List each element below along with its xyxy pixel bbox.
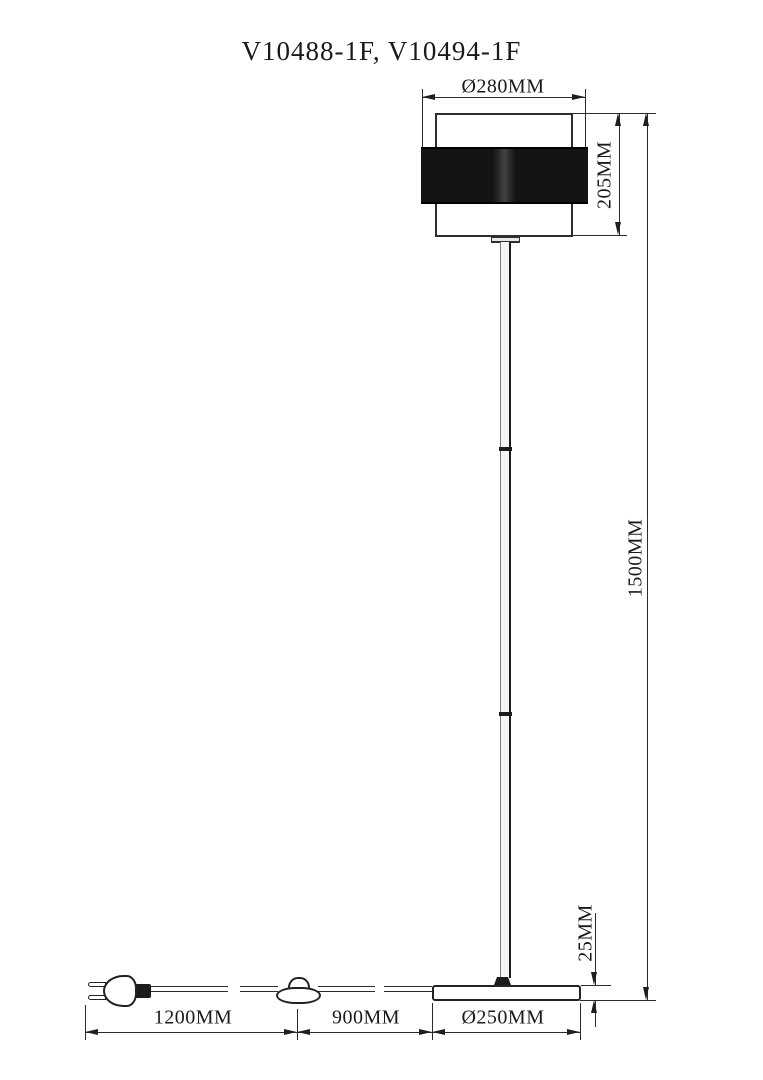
- lamp-base: [432, 985, 581, 1001]
- pole-joint-upper: [499, 447, 512, 451]
- dim-shade-diameter-ext-right: [585, 89, 586, 147]
- pole-foot-flange: [494, 977, 511, 985]
- dim-label-total-height: 1500MM: [625, 519, 648, 598]
- arrowhead-right-icon: [572, 94, 585, 100]
- dim-label-shade-height: 205MM: [594, 141, 617, 209]
- arrowhead-right-icon: [567, 1029, 580, 1035]
- foot-switch-base: [276, 987, 321, 1004]
- arrowhead-up-icon: [615, 113, 621, 126]
- dim-bottom-chain-line: [85, 1032, 580, 1033]
- arrowhead-down-icon: [643, 987, 649, 1000]
- arrowhead-right-icon: [284, 1029, 297, 1035]
- ext-line-switch: [297, 1009, 298, 1040]
- cord-segment-2: [240, 986, 278, 992]
- arrowhead-up-icon: [591, 1000, 597, 1013]
- ext-line-base-right: [580, 1003, 581, 1040]
- cord-segment-3: [318, 986, 375, 992]
- arrowhead-left-icon: [422, 94, 435, 100]
- cord-segment-1: [150, 986, 228, 992]
- dim-label-plug-to-switch: 1200MM: [154, 1007, 233, 1030]
- arrowhead-down-icon: [615, 222, 621, 235]
- pole-joint-lower: [499, 712, 512, 716]
- arrowhead-left-icon: [432, 1029, 445, 1035]
- arrowhead-down-icon: [591, 972, 597, 985]
- arrowhead-left-icon: [85, 1029, 98, 1035]
- power-plug-body: [103, 975, 137, 1007]
- arrowhead-left-icon: [297, 1029, 310, 1035]
- dim-base-top-extension-line: [581, 985, 611, 986]
- dim-label-switch-to-base: 900MM: [332, 1007, 400, 1030]
- dim-label-base-thickness: 25MM: [575, 904, 598, 962]
- dim-shade-bottom-extension-line: [572, 235, 627, 236]
- dim-label-shade-diameter: Ø280MM: [461, 76, 544, 99]
- arrowhead-right-icon: [419, 1029, 432, 1035]
- lamp-shade-fabric-band: [421, 147, 588, 204]
- dim-label-base-diameter: Ø250MM: [461, 1007, 544, 1030]
- arrowhead-up-icon: [643, 113, 649, 126]
- cord-segment-4: [384, 986, 432, 992]
- drawing-title: V10488-1F, V10494-1F: [0, 36, 763, 67]
- lamp-pole: [500, 242, 511, 978]
- dim-shade-height-line: [619, 113, 620, 235]
- technical-drawing-page: V10488-1F, V10494-1F Ø280MM 205MM 1500MM…: [0, 0, 763, 1080]
